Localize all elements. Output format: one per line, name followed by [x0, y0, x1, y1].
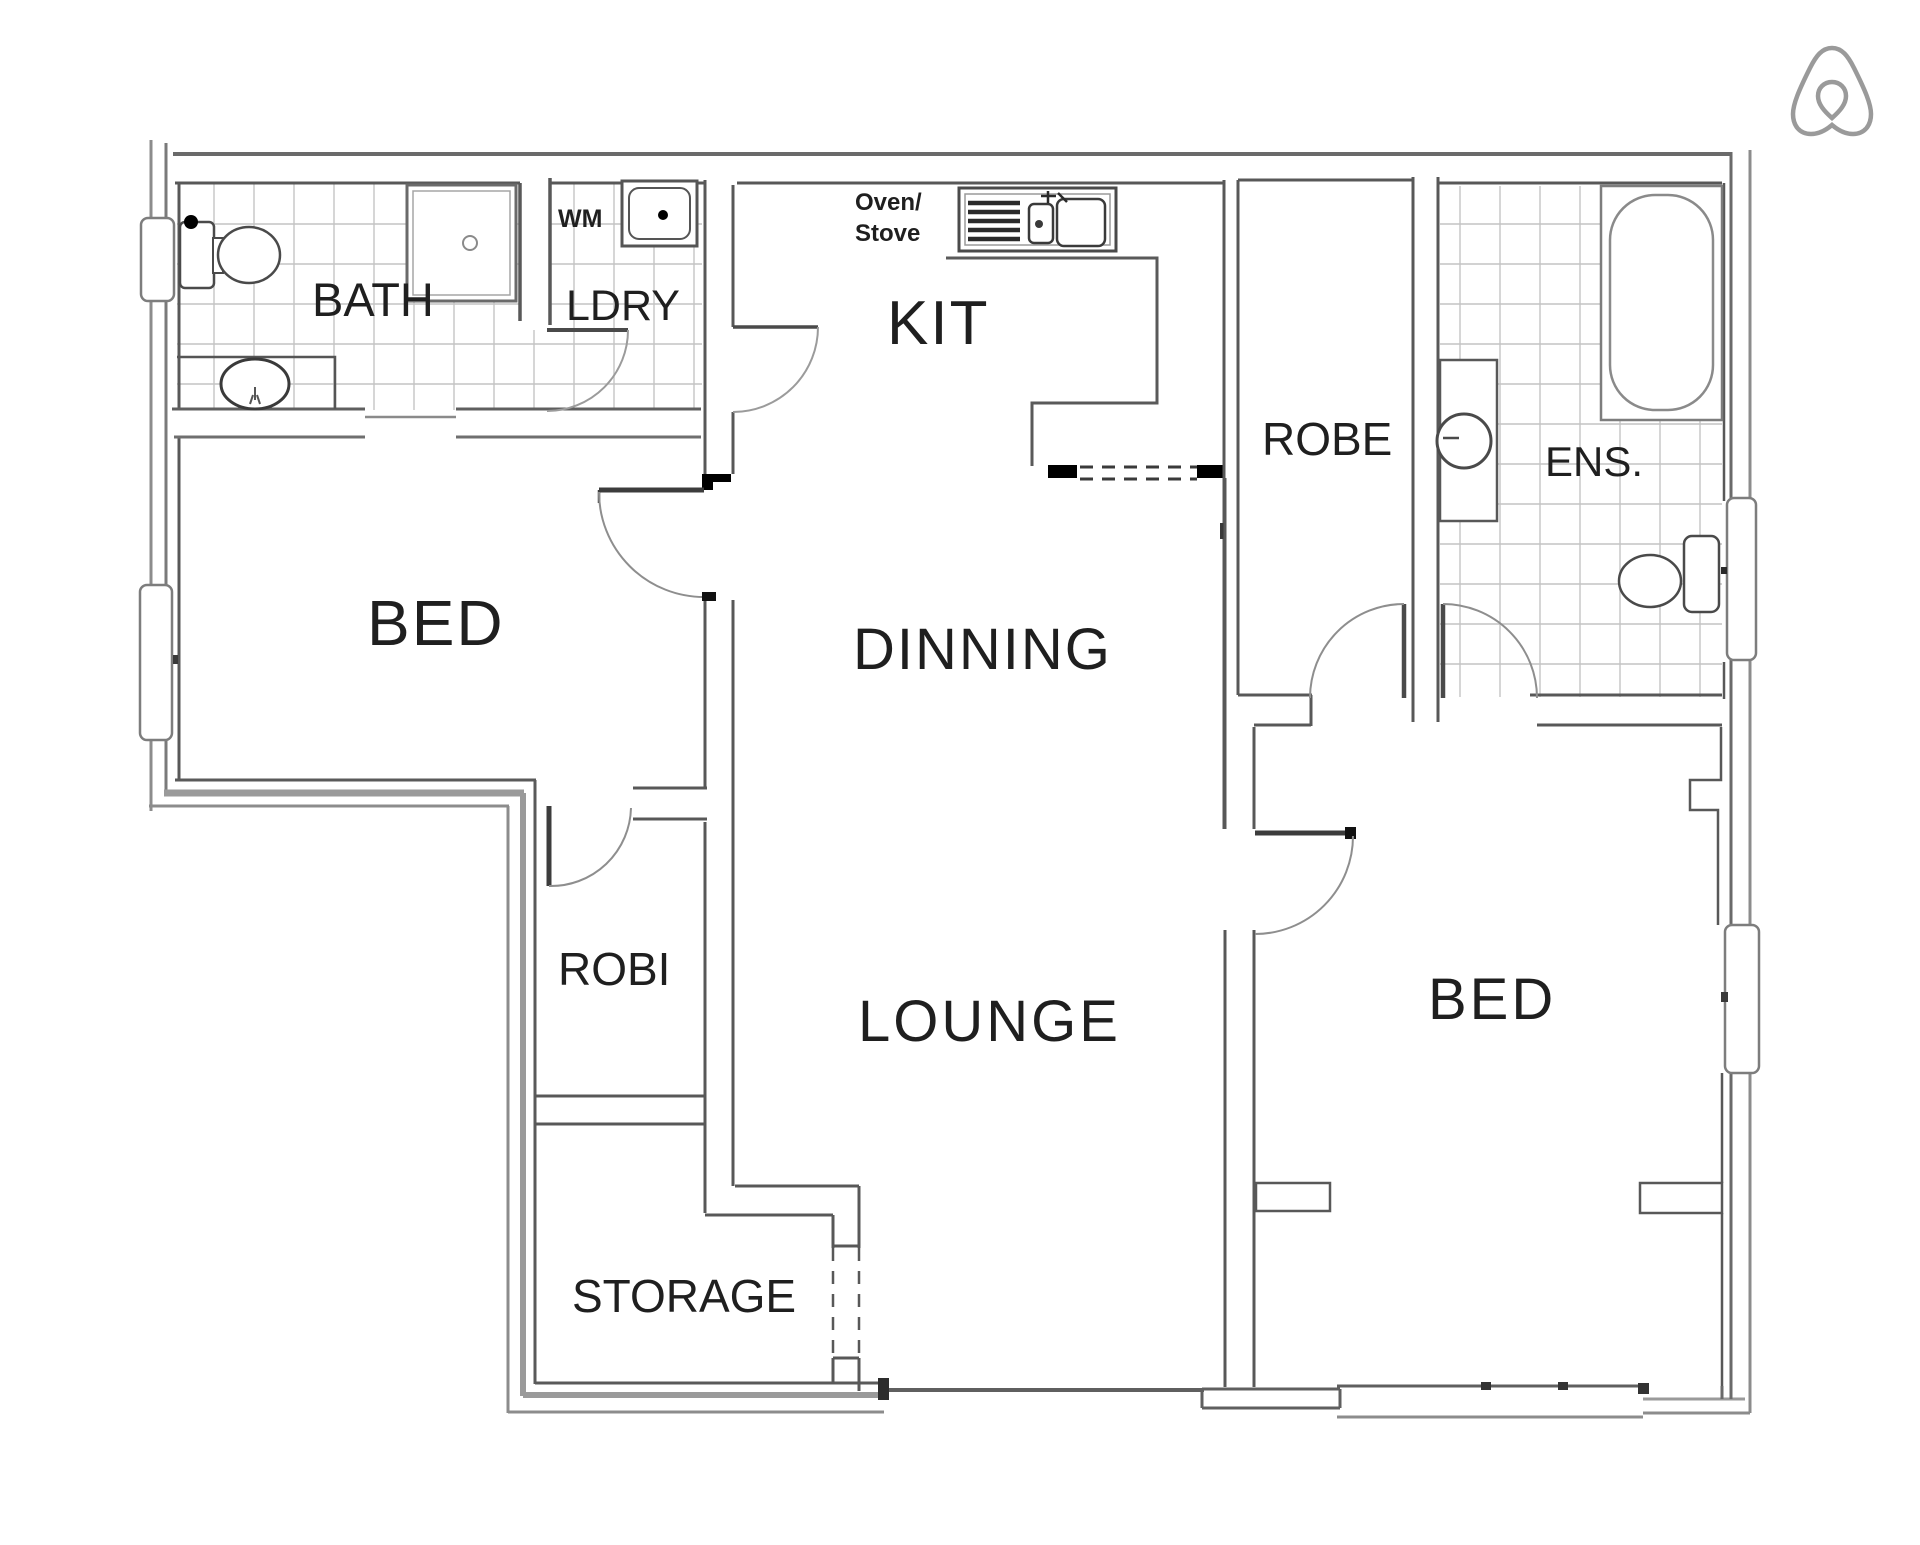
- svg-text:ENS.: ENS.: [1545, 438, 1643, 485]
- svg-text:WM: WM: [558, 205, 602, 233]
- svg-text:Stove: Stove: [855, 220, 920, 247]
- svg-text:LDRY: LDRY: [566, 282, 680, 330]
- svg-text:ROBI: ROBI: [558, 943, 670, 995]
- svg-text:LOUNGE: LOUNGE: [858, 989, 1121, 1054]
- svg-text:BED: BED: [1428, 967, 1556, 1032]
- svg-text:DINNING: DINNING: [853, 617, 1112, 682]
- svg-text:ROBE: ROBE: [1262, 413, 1392, 465]
- svg-text:BATH: BATH: [312, 273, 434, 326]
- svg-text:Oven/: Oven/: [855, 189, 922, 216]
- svg-text:BED: BED: [367, 587, 505, 659]
- svg-text:KIT: KIT: [887, 289, 989, 358]
- svg-text:STORAGE: STORAGE: [572, 1270, 796, 1322]
